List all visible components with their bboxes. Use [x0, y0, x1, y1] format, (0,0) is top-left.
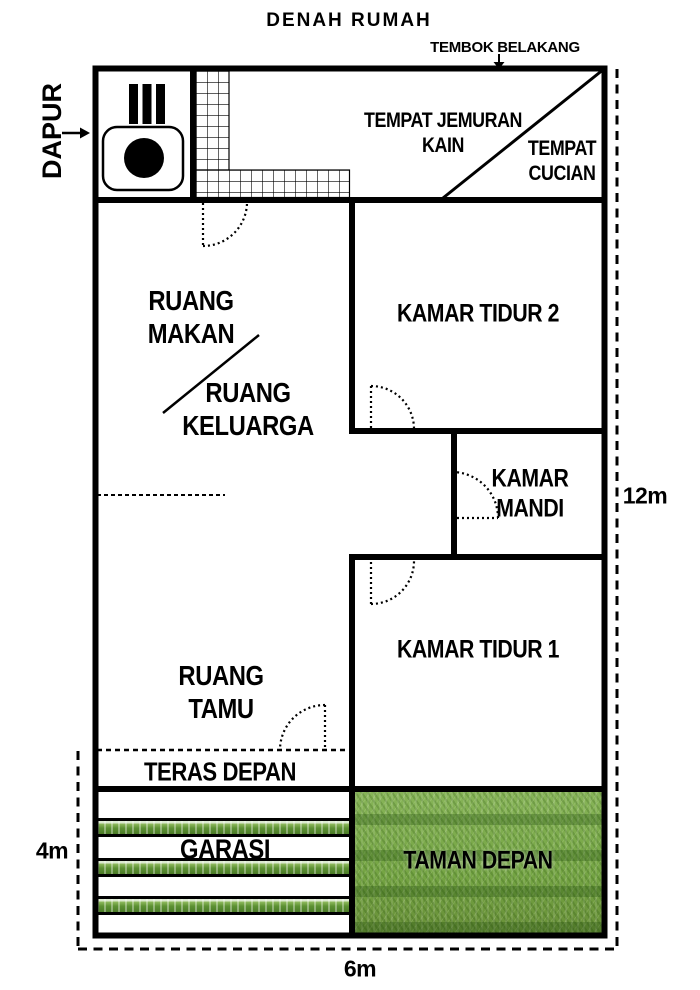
wall-bathroom-left: [451, 432, 457, 559]
room-label-keluarga: RUANG KELUARGA: [182, 376, 313, 442]
door-bedroom2: [371, 386, 414, 429]
room-label-tamu: RUANG TAMU: [178, 659, 263, 725]
door-kitchen: [203, 203, 247, 246]
dimension-12m: 12m: [623, 482, 668, 509]
wall-bedroom1-left: [349, 558, 355, 790]
room-label-jemuran: TEMPAT JEMURAN KAIN: [364, 109, 522, 159]
room-label-cucian-line2: CUCIAN: [528, 162, 596, 187]
wall-garage-garden-divider: [349, 790, 355, 935]
wall-bedroom2-bottom: [349, 428, 605, 434]
back-wall-label: TEMBOK BELAKANG: [430, 39, 580, 57]
door-living-room: [280, 705, 325, 749]
room-label-jemuran-line1: TEMPAT JEMURAN: [364, 109, 522, 134]
room-label-makan-line1: RUANG: [148, 284, 234, 317]
stove-icon: [103, 84, 183, 190]
room-label-keluarga-line1: RUANG: [182, 376, 313, 409]
door-bedroom1: [371, 561, 414, 604]
room-label-tidur2: KAMAR TIDUR 2: [397, 299, 559, 329]
floor-plan: DENAH RUMAH TEMBOK BELAKANG DAPUR TEMPAT…: [0, 0, 700, 990]
dimension-6m: 6m: [344, 955, 376, 982]
kitchen-label: DAPUR: [37, 83, 69, 179]
room-label-tamu-line2: TAMU: [178, 692, 263, 725]
room-label-taman: TAMAN DEPAN: [403, 846, 552, 876]
room-label-cucian: TEMPAT CUCIAN: [528, 137, 596, 187]
dimension-4m: 4m: [36, 837, 68, 864]
wall-kitchen-right: [190, 68, 196, 200]
room-label-tidur1: KAMAR TIDUR 1: [397, 635, 559, 665]
room-label-garasi: GARASI: [180, 832, 270, 865]
room-label-mandi-line1: KAMAR: [492, 465, 569, 495]
room-label-jemuran-line2: KAIN: [364, 134, 522, 159]
room-label-cucian-line1: TEMPAT: [528, 137, 596, 162]
wall-bedroom1-top: [349, 554, 605, 560]
room-label-tamu-line1: RUANG: [178, 659, 263, 692]
kitchen-tile-counter: [196, 71, 350, 198]
room-label-makan-line2: MAKAN: [148, 317, 234, 350]
room-label-teras: TERAS DEPAN: [144, 757, 296, 788]
room-label-mandi-line2: MANDI: [492, 494, 569, 524]
room-label-makan: RUANG MAKAN: [148, 284, 234, 350]
room-label-keluarga-line2: KELUARGA: [182, 409, 313, 442]
room-label-mandi: KAMAR MANDI: [492, 465, 569, 524]
wall-bedroom2-left: [349, 200, 355, 433]
page-title: DENAH RUMAH: [266, 10, 432, 32]
